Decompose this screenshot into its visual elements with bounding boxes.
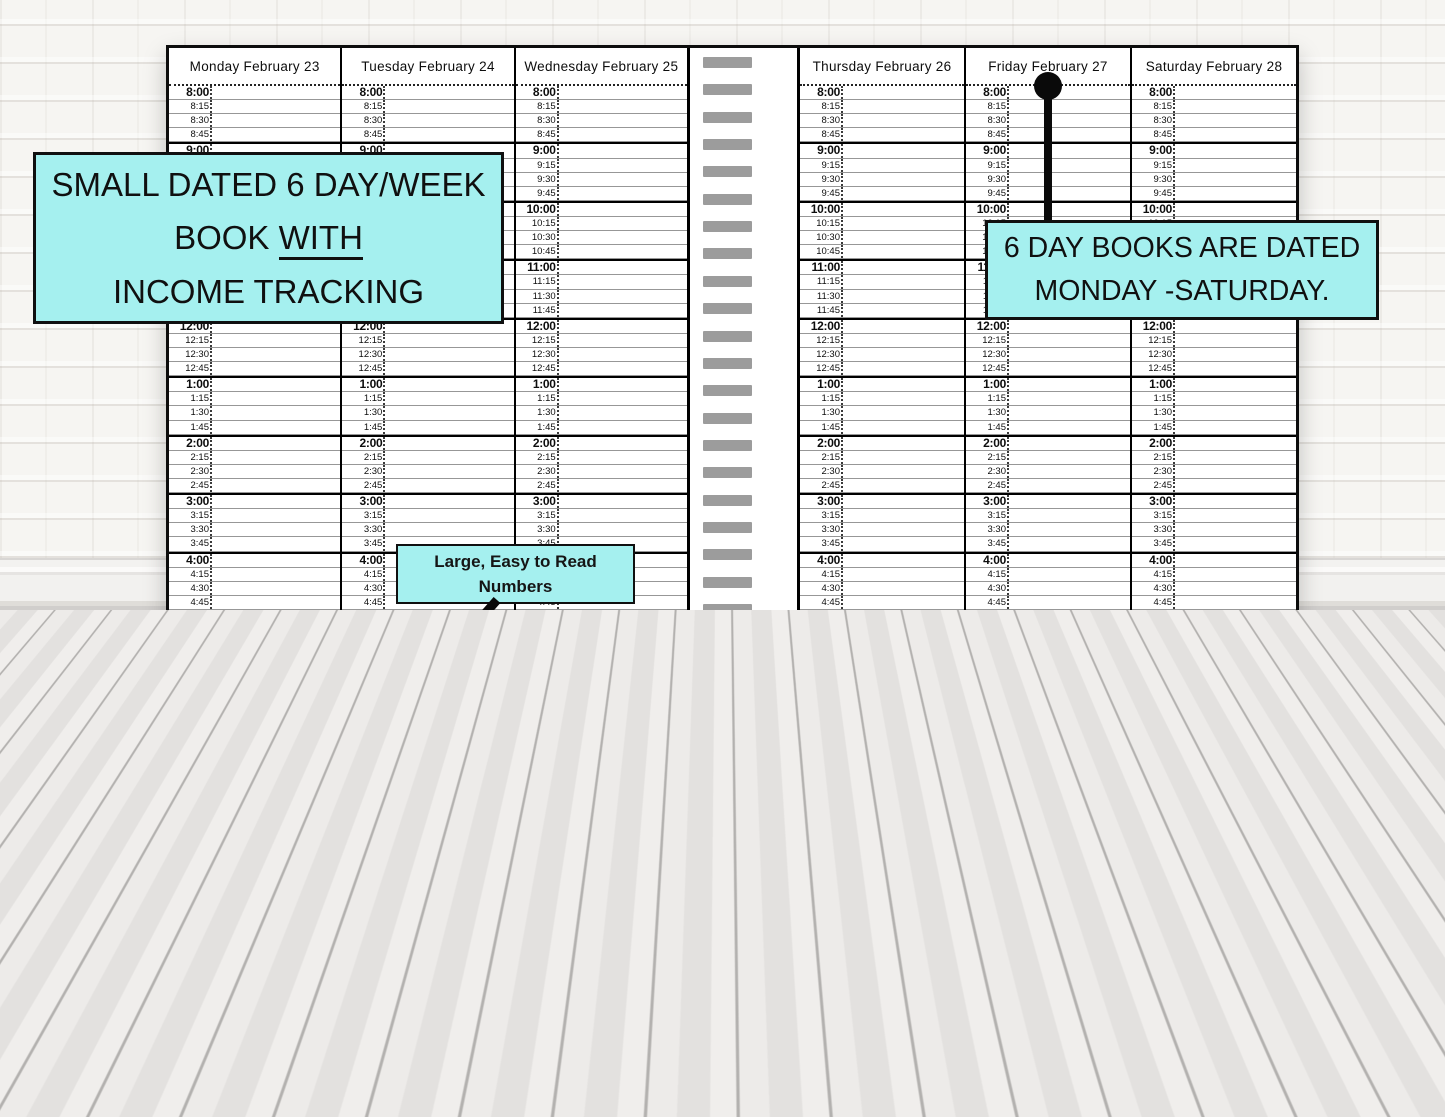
time-row: 1:45 (516, 421, 687, 435)
time-row: 12:15 (1132, 334, 1296, 348)
appointment-space (843, 348, 964, 361)
appointment-space (843, 114, 964, 127)
time-row: 6:45 (1132, 713, 1296, 727)
appointment-space (1175, 743, 1296, 756)
appointment-space (1175, 596, 1296, 609)
appointment-space (385, 479, 513, 492)
time-row: 4:00 (966, 552, 1130, 568)
time-row: 4:00 (1132, 552, 1296, 568)
tips-entry-cell (645, 896, 687, 916)
time-label: 6:00 (516, 670, 559, 683)
spiral-bar (703, 467, 752, 478)
time-row: 5:45 (800, 654, 964, 668)
time-row: 11:00 (516, 259, 687, 275)
time-label: 8:45 (966, 128, 1009, 141)
time-label: 7:30 (516, 757, 559, 770)
time-row: 4:15 (1132, 568, 1296, 582)
appointment-space (843, 437, 964, 450)
appointment-space (1009, 757, 1130, 770)
appointment-space (1009, 479, 1130, 492)
appointment-space (1175, 437, 1296, 450)
time-row: 8:30 (342, 815, 513, 829)
time-label: 1:15 (800, 392, 843, 405)
time-row: 12:00 (800, 318, 964, 334)
time-label: 2:45 (800, 479, 843, 492)
time-row: 8:45 (169, 128, 340, 142)
time-label: 4:30 (966, 582, 1009, 595)
time-row: 2:30 (1132, 465, 1296, 479)
time-row: 1:00 (342, 376, 513, 392)
time-label: 12:45 (1132, 362, 1175, 375)
day-header: Thursday February 26 (800, 48, 964, 84)
friday-pointer-line (1044, 85, 1052, 225)
time-row: 1:30 (516, 406, 687, 420)
appointment-space (1009, 801, 1130, 814)
appointment-space (843, 231, 964, 244)
appointment-space (559, 713, 687, 726)
appointment-space (212, 509, 340, 522)
time-row: 8:15 (169, 801, 340, 815)
time-row: 3:30 (169, 523, 340, 537)
time-label: 5:15 (966, 626, 1009, 639)
appointment-space (1009, 523, 1130, 536)
time-label: 4:45 (169, 596, 212, 609)
income-table-corner-cell (516, 862, 561, 876)
time-row: 5:30 (169, 640, 340, 654)
tips-entry-cell (845, 896, 885, 916)
time-label: 8:00 (966, 86, 1009, 99)
dated-callout-line1: 6 DAY BOOKS ARE DATED (1004, 227, 1360, 270)
time-row: 8:30 (800, 815, 964, 829)
time-row: 8:00 (1132, 785, 1296, 801)
income-column-header: Other (1090, 862, 1130, 876)
magnifier-time-row: 6:00 (324, 674, 434, 691)
spiral-bar (703, 713, 752, 724)
appointment-space (559, 144, 687, 157)
time-row: 8:00 (342, 86, 513, 100)
tips-row-label: TIPS (516, 896, 561, 916)
time-row: 5:15 (342, 626, 513, 640)
time-row: 5:30 (342, 640, 513, 654)
appointment-space (559, 626, 687, 639)
appointment-space (1175, 479, 1296, 492)
time-label: 4:45 (800, 596, 843, 609)
time-row: 7:00 (516, 727, 687, 743)
time-label: 10:45 (800, 245, 843, 258)
appointment-space (212, 437, 340, 450)
time-row: 11:00 (800, 259, 964, 275)
income-entry-cell (1090, 876, 1130, 896)
appointment-space (559, 612, 687, 625)
time-row: 3:45 (169, 537, 340, 551)
time-label: 3:00 (342, 495, 385, 508)
appointment-space (1175, 86, 1296, 99)
appointment-space (1009, 465, 1130, 478)
time-label: 12:45 (966, 362, 1009, 375)
appointment-space (1175, 378, 1296, 391)
time-label: 5:00 (800, 612, 843, 625)
appointment-space (385, 612, 513, 625)
time-row: 9:45 (800, 187, 964, 201)
income-table-corner-cell (800, 862, 845, 876)
time-row: 2:15 (800, 451, 964, 465)
time-row: 5:15 (1132, 626, 1296, 640)
time-label: 9:00 (966, 846, 1009, 859)
time-label: 3:30 (169, 523, 212, 536)
time-label: 5:30 (516, 640, 559, 653)
appointment-space (843, 640, 964, 653)
time-row: 5:45 (169, 654, 340, 668)
time-row: 5:15 (800, 626, 964, 640)
time-label: 8:00 (516, 86, 559, 99)
time-label: 4:15 (169, 568, 212, 581)
time-label: 1:30 (1132, 406, 1175, 419)
time-row: 2:30 (966, 465, 1130, 479)
time-row: 6:45 (966, 713, 1130, 727)
appointment-space (212, 392, 340, 405)
time-label: 8:30 (342, 815, 385, 828)
time-row: 5:45 (516, 654, 687, 668)
time-row: 10:30 (800, 231, 964, 245)
time-row: 12:15 (966, 334, 1130, 348)
time-row: 1:45 (800, 421, 964, 435)
time-row: 4:45 (1132, 596, 1296, 610)
time-row: 8:15 (800, 801, 964, 815)
time-label: 6:15 (516, 684, 559, 697)
time-row: 12:30 (800, 348, 964, 362)
income-entry-cell (298, 876, 340, 896)
main-callout-line2: BOOK WITH (174, 211, 363, 264)
time-row: 8:30 (966, 815, 1130, 829)
time-label: 3:30 (1132, 523, 1175, 536)
time-row: 7:15 (800, 743, 964, 757)
appointment-space (1175, 640, 1296, 653)
time-label: 8:30 (800, 815, 843, 828)
time-row: 3:15 (342, 509, 513, 523)
time-row: 8:15 (169, 100, 340, 114)
appointment-space (559, 509, 687, 522)
income-column-header: Checks (1217, 862, 1257, 876)
time-label: 4:30 (1132, 582, 1175, 595)
time-label: 8:00 (342, 86, 385, 99)
time-row: 3:00 (800, 493, 964, 509)
time-row: 7:30 (966, 757, 1130, 771)
time-row: 2:00 (516, 435, 687, 451)
time-row: 1:00 (516, 376, 687, 392)
time-row: 8:15 (342, 100, 513, 114)
time-row: 12:45 (800, 362, 964, 376)
time-row: 3:00 (342, 493, 513, 509)
time-label: 10:00 (800, 203, 843, 216)
time-row: 6:45 (800, 713, 964, 727)
time-row: 3:30 (1132, 523, 1296, 537)
income-table: CashChecksOtherINCOMETIPS (1132, 859, 1296, 916)
appointment-space (385, 626, 513, 639)
tips-entry-cell (429, 896, 471, 916)
appointment-space (385, 86, 513, 99)
time-row: 2:00 (800, 435, 964, 451)
appointment-space (385, 406, 513, 419)
appointment-space (385, 495, 513, 508)
time-row: 8:30 (516, 815, 687, 829)
appointment-space (1009, 815, 1130, 828)
spiral-bar (703, 248, 752, 259)
appointment-space (559, 421, 687, 434)
appointment-space (1009, 596, 1130, 609)
time-label: 6:30 (169, 699, 212, 712)
time-row: 10:00 (800, 201, 964, 217)
time-label: 6:15 (800, 684, 843, 697)
time-row: 9:00 (1132, 142, 1296, 158)
time-label: 6:45 (169, 713, 212, 726)
appointment-space (843, 757, 964, 770)
time-label: 2:15 (516, 451, 559, 464)
tips-row-label: TIPS (342, 896, 387, 916)
time-label: 7:45 (1132, 771, 1175, 784)
appointment-space (843, 670, 964, 683)
time-label: 9:30 (1132, 173, 1175, 186)
time-row: 2:45 (800, 479, 964, 493)
time-label: 9:45 (516, 187, 559, 200)
income-row-label: INCOME (342, 876, 387, 896)
time-label: 2:15 (800, 451, 843, 464)
appointment-space (559, 523, 687, 536)
time-row: 8:45 (169, 830, 340, 844)
time-label: 1:30 (966, 406, 1009, 419)
time-row: 10:15 (800, 217, 964, 231)
time-label: 1:00 (800, 378, 843, 391)
time-label: 11:15 (516, 275, 559, 288)
time-row: 12:45 (169, 362, 340, 376)
time-row: 8:30 (169, 114, 340, 128)
appointment-space (559, 729, 687, 742)
tips-entry-cell (603, 896, 645, 916)
time-row: 9:00 (516, 844, 687, 859)
appointment-space (843, 320, 964, 333)
time-row: 12:30 (966, 348, 1130, 362)
spiral-bar (703, 194, 752, 205)
appointment-space (385, 640, 513, 653)
spiral-bar (703, 358, 752, 369)
time-label: 5:45 (516, 654, 559, 667)
time-label: 8:30 (966, 815, 1009, 828)
time-row: 12:30 (1132, 348, 1296, 362)
time-label: 12:15 (800, 334, 843, 347)
time-label: 1:00 (169, 378, 212, 391)
income-row-label: INCOME (516, 876, 561, 896)
time-label: 2:15 (1132, 451, 1175, 464)
appointment-space (385, 437, 513, 450)
time-label: 7:00 (516, 729, 559, 742)
time-label: 2:45 (1132, 479, 1175, 492)
time-row: 4:15 (169, 568, 340, 582)
time-row: 4:45 (966, 596, 1130, 610)
time-label: 6:30 (800, 699, 843, 712)
income-column-header: Cash (387, 862, 429, 876)
appointment-space (212, 495, 340, 508)
time-row: 8:00 (1132, 86, 1296, 100)
appointment-space (212, 378, 340, 391)
day-column: Wednesday February 258:008:158:308:459:0… (514, 48, 687, 916)
time-label: 1:45 (169, 421, 212, 434)
numbers-callout-line1: Large, Easy to Read (434, 549, 597, 575)
time-label: 8:30 (169, 114, 212, 127)
time-label: 9:15 (1132, 159, 1175, 172)
time-row: 7:00 (1132, 727, 1296, 743)
appointment-space (843, 582, 964, 595)
day-column: Thursday February 268:008:158:308:459:00… (800, 48, 964, 916)
time-label: 8:15 (800, 100, 843, 113)
appointment-space (559, 787, 687, 800)
time-label: 8:00 (966, 787, 1009, 800)
appointment-space (559, 217, 687, 230)
appointment-space (1175, 771, 1296, 784)
time-label: 4:45 (1132, 596, 1175, 609)
time-row: 9:30 (1132, 173, 1296, 187)
time-row: 7:45 (800, 771, 964, 785)
time-label: 12:00 (800, 320, 843, 333)
appointment-space (843, 830, 964, 843)
time-row: 11:45 (800, 304, 964, 318)
appointment-space (385, 815, 513, 828)
appointment-space (559, 670, 687, 683)
tips-entry-cell (1011, 896, 1051, 916)
time-label: 3:30 (966, 523, 1009, 536)
appointment-space (1009, 144, 1130, 157)
daily-totals-pointer-dot (1044, 840, 1075, 871)
appointment-space (843, 465, 964, 478)
time-row: 1:15 (169, 392, 340, 406)
appointment-space (212, 801, 340, 814)
time-row: 11:15 (516, 275, 687, 289)
income-table-corner-cell (342, 862, 387, 876)
appointment-space (385, 830, 513, 843)
time-label: 12:15 (1132, 334, 1175, 347)
time-row: 1:45 (1132, 421, 1296, 435)
time-label: 7:30 (800, 757, 843, 770)
time-label: 9:00 (800, 144, 843, 157)
time-label: 4:15 (966, 568, 1009, 581)
time-label: 12:45 (342, 362, 385, 375)
appointment-space (843, 626, 964, 639)
appointment-space (843, 334, 964, 347)
tips-entry-cell (256, 896, 298, 916)
appointment-space (559, 392, 687, 405)
time-row: 7:30 (516, 757, 687, 771)
appointment-space (212, 830, 340, 843)
income-entry-cell (924, 876, 964, 896)
spiral-bar (703, 659, 752, 670)
time-label: 8:15 (1132, 100, 1175, 113)
appointment-space (559, 757, 687, 770)
time-label: 12:15 (966, 334, 1009, 347)
appointment-space (1175, 554, 1296, 567)
appointment-space (1009, 187, 1130, 200)
time-row: 8:30 (800, 114, 964, 128)
page-margin-copyright: © FryeCakesDesigns (784, 804, 795, 908)
appointment-space (1175, 670, 1296, 683)
appointment-space (559, 290, 687, 303)
appointment-space (843, 554, 964, 567)
time-row: 3:15 (516, 509, 687, 523)
appointment-space (843, 509, 964, 522)
main-callout-line2-underlined: WITH (279, 219, 363, 260)
appointment-space (385, 378, 513, 391)
appointment-space (1009, 334, 1130, 347)
time-label: 3:45 (169, 537, 212, 550)
time-row: 2:15 (966, 451, 1130, 465)
appointment-space (385, 421, 513, 434)
appointment-space (1009, 320, 1130, 333)
income-column-header: Checks (429, 862, 471, 876)
time-label: 12:15 (169, 334, 212, 347)
time-row: 5:15 (966, 626, 1130, 640)
spiral-bar (703, 522, 752, 533)
time-label: 3:15 (169, 509, 212, 522)
appointment-space (1009, 451, 1130, 464)
time-row: 11:30 (516, 290, 687, 304)
spiral-bar (703, 84, 752, 95)
time-label: 8:00 (800, 787, 843, 800)
spiral-bar (703, 604, 752, 615)
appointment-space (212, 612, 340, 625)
time-row: 5:30 (800, 640, 964, 654)
time-label: 8:15 (800, 801, 843, 814)
appointment-space (559, 495, 687, 508)
appointment-space (1009, 392, 1130, 405)
time-row: 7:15 (516, 743, 687, 757)
magnifier-rows: 6:006:156:306:457:007:157:307:458:00 (324, 674, 434, 804)
time-label: 5:00 (1132, 612, 1175, 625)
time-row: 9:45 (1132, 187, 1296, 201)
time-label: 4:00 (966, 554, 1009, 567)
spiral-bar (703, 112, 752, 123)
spiral-bar (703, 303, 752, 314)
appointment-space (1175, 612, 1296, 625)
tips-entry-cell (1090, 896, 1130, 916)
time-label: 3:00 (800, 495, 843, 508)
time-label: 4:00 (342, 554, 385, 567)
income-entry-cell (885, 876, 925, 896)
time-label: 6:45 (1132, 713, 1175, 726)
time-row: 9:00 (516, 142, 687, 158)
income-column-header: Checks (256, 862, 298, 876)
daily-totals-callout: DAILY TOTALS (952, 652, 1167, 703)
income-entry-cell (1217, 876, 1257, 896)
time-label: 6:30 (516, 699, 559, 712)
time-label: 2:00 (966, 437, 1009, 450)
appointment-space (559, 684, 687, 697)
appointment-space (559, 114, 687, 127)
time-row: 2:45 (516, 479, 687, 493)
time-label: 3:15 (800, 509, 843, 522)
income-row-label: INCOME (1132, 876, 1177, 896)
main-callout-line3: INCOME TRACKING (113, 265, 424, 318)
time-row: 2:45 (1132, 479, 1296, 493)
brand-watermark: ©FRYECAKESDESIGNS (0, 946, 1445, 1015)
time-row: 7:30 (1132, 757, 1296, 771)
time-label: 8:15 (966, 801, 1009, 814)
income-row-label: INCOME (966, 876, 1011, 896)
appointment-space (1175, 320, 1296, 333)
time-label: 10:30 (800, 231, 843, 244)
appointment-space (559, 743, 687, 756)
income-column-header: Other (472, 862, 514, 876)
time-row: 7:45 (966, 771, 1130, 785)
income-table: CashChecksOtherINCOMETIPS (966, 859, 1130, 916)
income-entry-cell (603, 876, 645, 896)
numbers-callout-line2: Numbers (479, 574, 553, 600)
